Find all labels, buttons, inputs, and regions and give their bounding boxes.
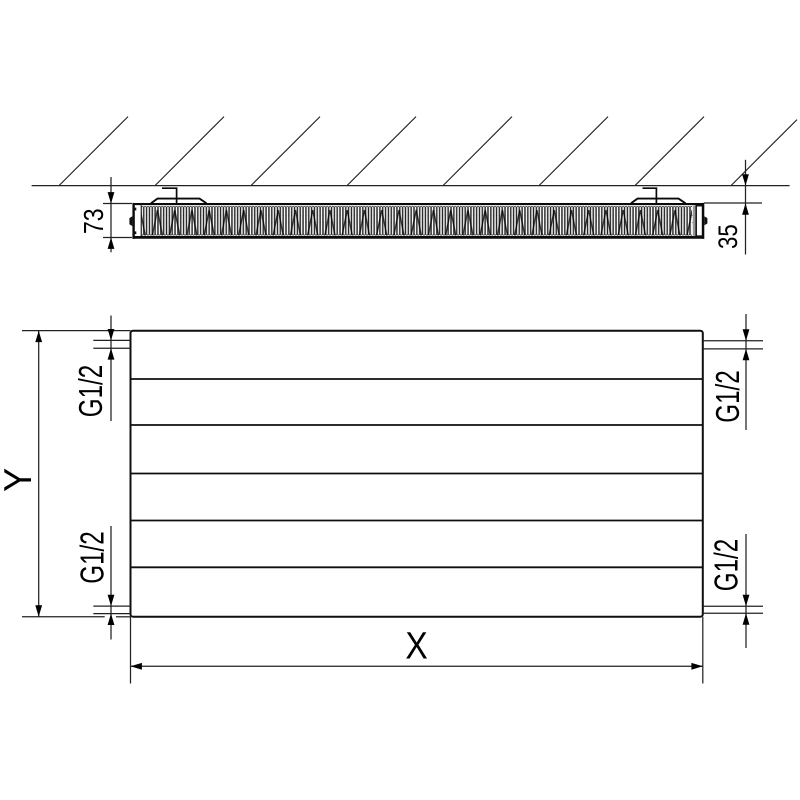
svg-text:G1/2: G1/2 bbox=[709, 539, 746, 591]
svg-text:Y: Y bbox=[0, 468, 39, 492]
svg-text:X: X bbox=[405, 625, 428, 667]
svg-text:G1/2: G1/2 bbox=[710, 370, 747, 422]
svg-text:35: 35 bbox=[714, 224, 743, 249]
svg-text:G1/2: G1/2 bbox=[74, 365, 111, 417]
svg-text:73: 73 bbox=[79, 208, 109, 234]
svg-text:G1/2: G1/2 bbox=[75, 531, 112, 583]
